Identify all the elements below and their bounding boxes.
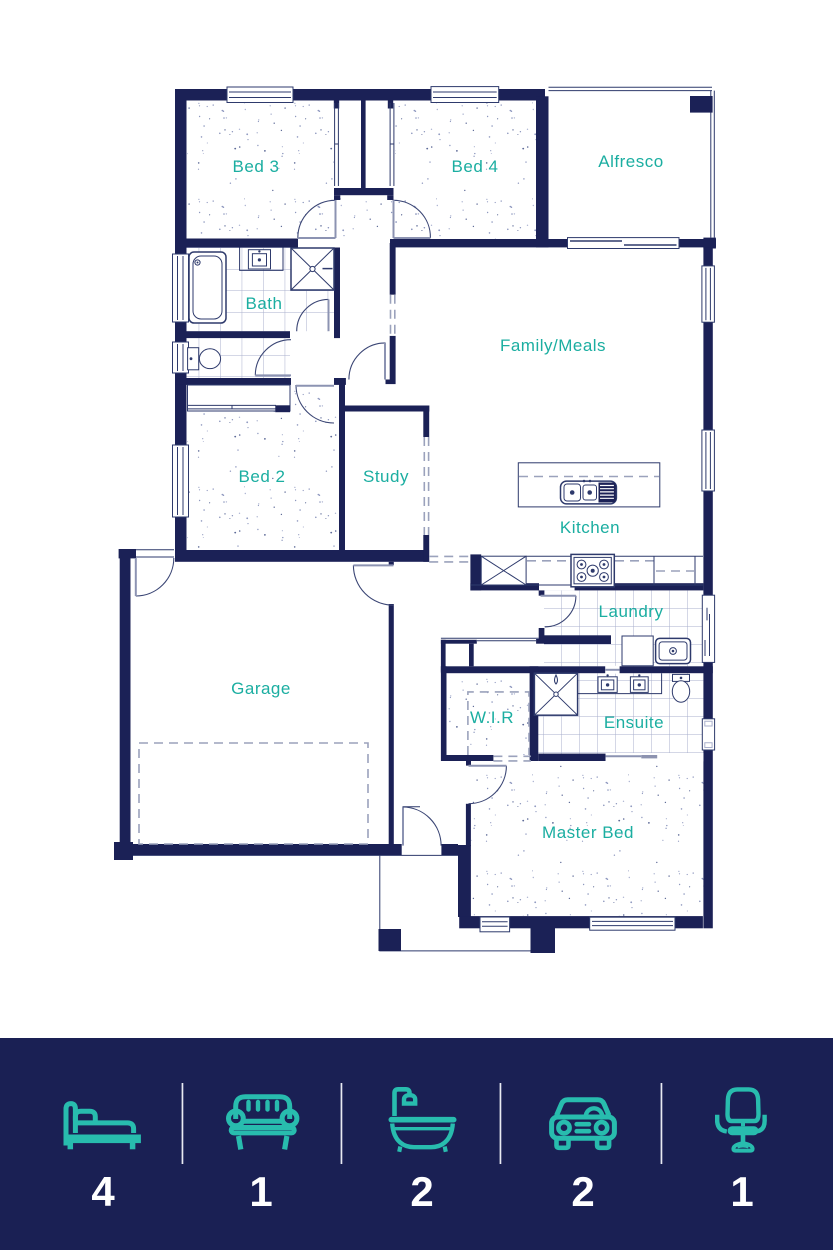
svg-text:W.I.R: W.I.R xyxy=(470,708,514,727)
svg-text:1: 1 xyxy=(249,1168,272,1215)
svg-text:2: 2 xyxy=(410,1168,433,1215)
svg-text:2: 2 xyxy=(571,1168,594,1215)
svg-text:Master Bed: Master Bed xyxy=(542,823,634,842)
svg-text:Study: Study xyxy=(363,467,409,486)
svg-text:Family/Meals: Family/Meals xyxy=(500,336,606,355)
svg-text:Bed 4: Bed 4 xyxy=(452,157,499,176)
svg-text:1: 1 xyxy=(730,1168,753,1215)
svg-text:Alfresco: Alfresco xyxy=(598,152,663,171)
svg-text:Bed 2: Bed 2 xyxy=(239,467,286,486)
svg-text:Garage: Garage xyxy=(231,679,291,698)
svg-text:4: 4 xyxy=(91,1168,115,1215)
svg-text:Kitchen: Kitchen xyxy=(560,518,620,537)
svg-text:Bed 3: Bed 3 xyxy=(233,157,280,176)
svg-text:Bath: Bath xyxy=(246,294,283,313)
svg-text:Laundry: Laundry xyxy=(599,602,664,621)
svg-text:Ensuite: Ensuite xyxy=(604,713,664,732)
